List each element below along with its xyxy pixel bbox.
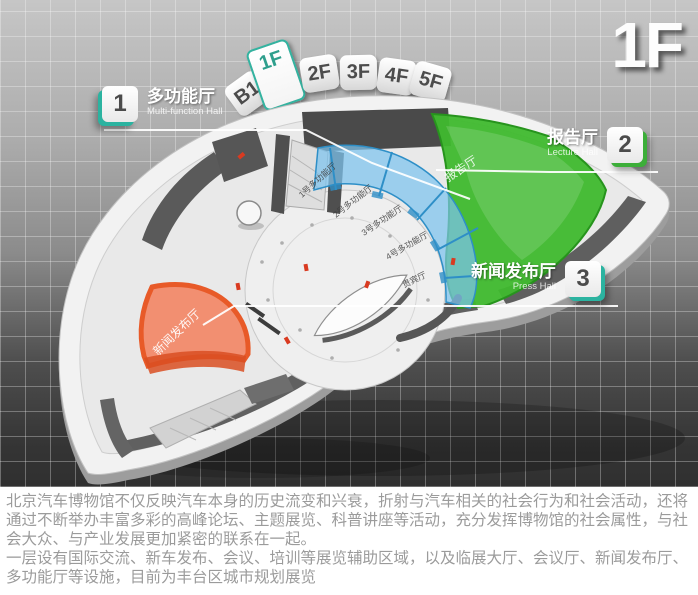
description-paragraph-2: 一层设有国际交流、新车发布、会议、培训等展览辅助区域，以及临展大厅、会议厅、新闻… — [0, 549, 698, 587]
legend-lecture-hall[interactable]: 2 报告厅 Lecture Hall — [538, 127, 643, 163]
hall-name-en: Multi-function Hall — [147, 106, 223, 117]
central-hall-floor — [245, 190, 445, 390]
hall-number-badge-1: 1 — [102, 86, 138, 122]
legend-multifunction-hall[interactable]: 1 多功能厅 Multi-function Hall — [102, 86, 232, 122]
description-paragraph-1: 北京汽车博物馆不仅反映汽车本身的历史流变和兴衰，折射与汽车相关的社会行为和社会活… — [0, 487, 698, 549]
hall-number-badge-2: 2 — [607, 127, 643, 163]
hall-name-zh: 多功能厅 — [147, 88, 223, 106]
page: B1 1F 2F 3F 4F 5F — [0, 0, 698, 595]
map-canvas: B1 1F 2F 3F 4F 5F — [0, 0, 698, 487]
hall-name-en: Lecture Hall — [547, 147, 598, 158]
description: 北京汽车博物馆不仅反映汽车本身的历史流变和兴衰，折射与汽车相关的社会行为和社会活… — [0, 487, 698, 595]
hall-name-zh: 新闻发布厅 — [471, 263, 556, 281]
cylinder-feature — [237, 201, 261, 225]
legend-press-hall[interactable]: 3 新闻发布厅 Press Hall — [462, 261, 601, 297]
floor-indicator: 1F — [611, 8, 682, 82]
hall-name-zh: 报告厅 — [547, 129, 598, 147]
hall-name-en: Press Hall — [471, 281, 556, 292]
floor-map-illustration: 报告厅 新闻发布厅 — [0, 0, 698, 487]
hall-number-badge-3: 3 — [565, 261, 601, 297]
top-wall-slab — [302, 108, 451, 152]
